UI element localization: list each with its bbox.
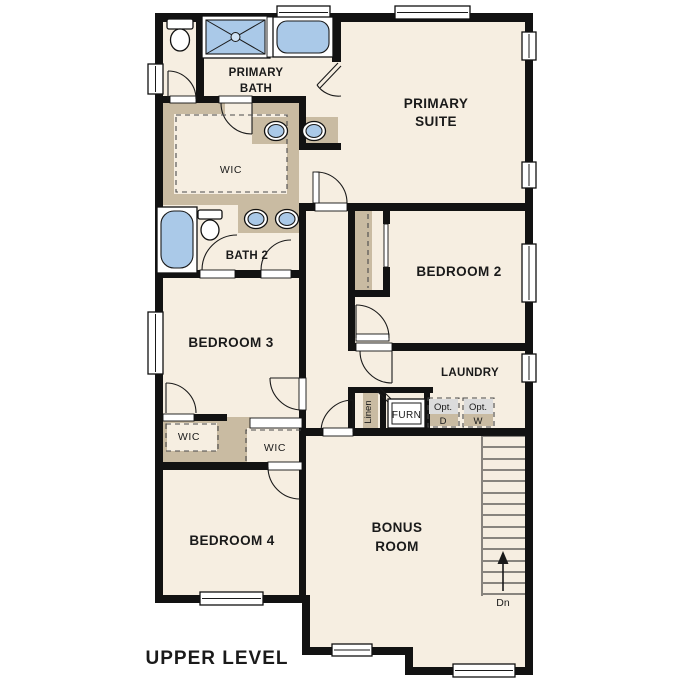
- furnace: FURN: [388, 399, 425, 428]
- bathtub: [157, 207, 197, 273]
- opt-dryer-label: Opt.: [434, 402, 452, 413]
- label-wic-primary: WIC: [220, 164, 242, 176]
- window: [522, 354, 536, 382]
- shower: [202, 16, 273, 58]
- stairs-direction-label: Dn: [496, 597, 510, 609]
- opt-dryer-letter: D: [440, 416, 447, 427]
- room-label-primary-bath: PRIMARY: [229, 67, 284, 79]
- label-wic-bedroom3: WIC: [178, 431, 200, 443]
- window: [453, 664, 515, 677]
- opt-washer-letter: W: [474, 416, 483, 427]
- furnace-label: FURN: [392, 410, 421, 421]
- room-label-bedroom2: BEDROOM 2: [416, 264, 501, 279]
- room-label-bedroom3: BEDROOM 3: [188, 335, 273, 350]
- room-label-bath2: BATH 2: [226, 250, 268, 262]
- floor-plan-drawing: FURN Opt. D Opt. W Dn: [0, 0, 687, 687]
- room-label-bonus-2: ROOM: [375, 539, 419, 554]
- room-label-bonus: BONUS: [372, 520, 423, 535]
- closet-door-panel: [384, 224, 388, 267]
- room-label-primary-suite: PRIMARY: [404, 96, 469, 111]
- window: [522, 32, 536, 60]
- page-title: UPPER LEVEL: [146, 648, 289, 669]
- window: [522, 162, 536, 188]
- floor-plan-page: FURN Opt. D Opt. W Dn: [0, 0, 687, 687]
- room-label-laundry: LAUNDRY: [441, 367, 499, 379]
- window: [395, 6, 470, 19]
- window: [148, 64, 163, 94]
- window: [148, 312, 163, 374]
- label-linen: Linen: [363, 400, 374, 423]
- opt-washer-label: Opt.: [469, 402, 487, 413]
- window: [332, 644, 372, 656]
- window: [200, 592, 263, 605]
- room-label-primary-suite-2: SUITE: [415, 114, 457, 129]
- room-label-primary-bath-2: BATH: [240, 83, 272, 95]
- label-wic-bedroom4: WIC: [264, 442, 286, 454]
- room-label-bedroom4: BEDROOM 4: [189, 533, 274, 548]
- window: [522, 244, 536, 302]
- bathtub: [273, 17, 333, 57]
